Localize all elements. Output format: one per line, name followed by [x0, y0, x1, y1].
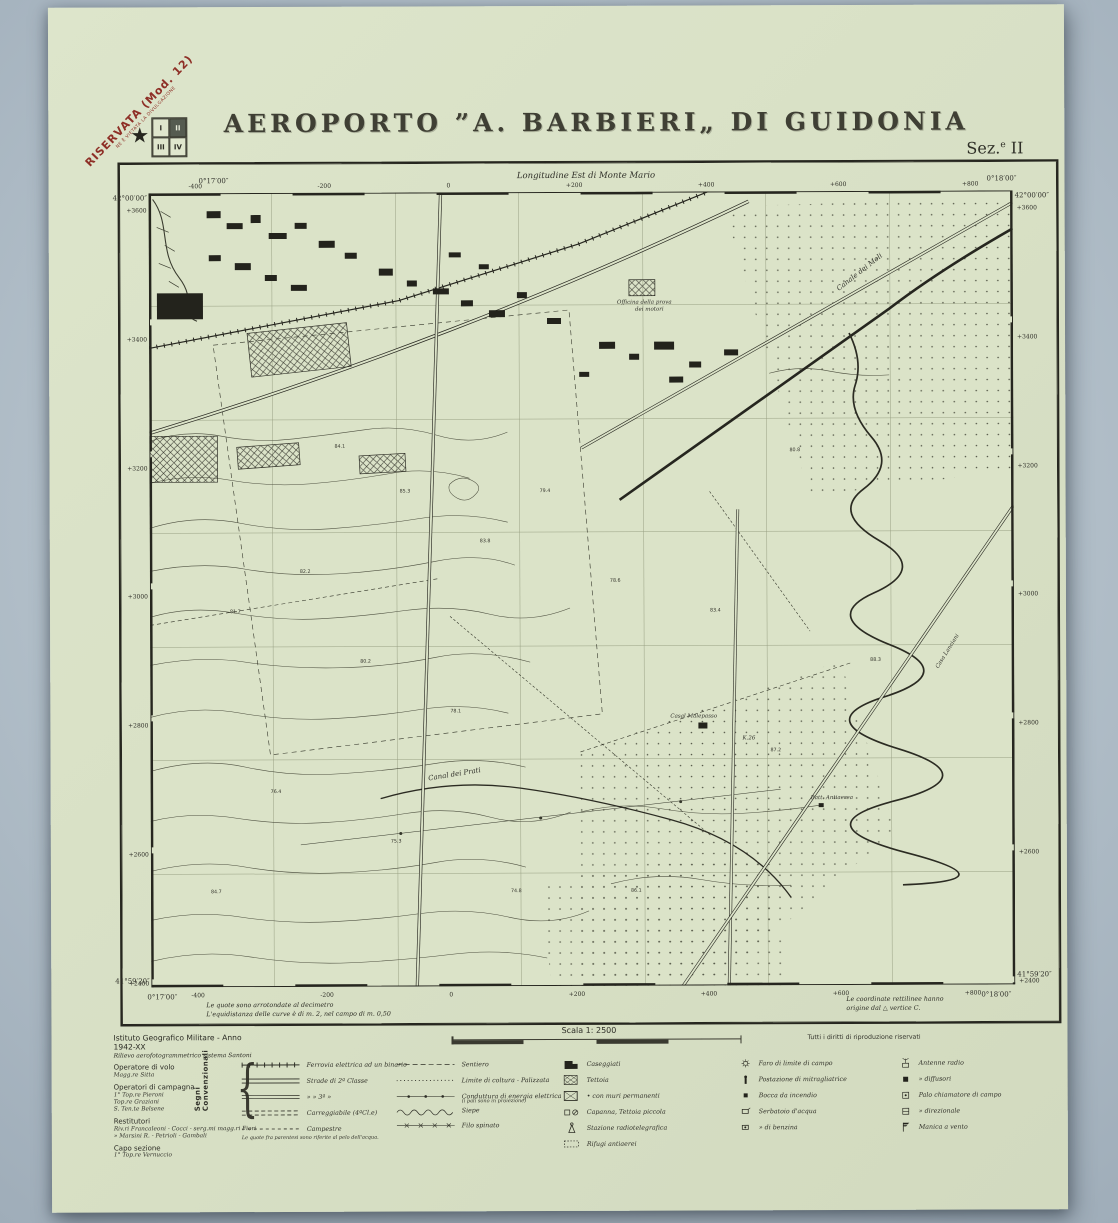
legend-row-faro: Faro di limite di campo — [740, 1055, 847, 1071]
grid-label: +3400 — [119, 336, 147, 343]
legend-row-capanna: Capanna, Tettoia piccola — [564, 1104, 667, 1120]
legend-icon-manica-vento — [900, 1122, 912, 1132]
grid-label: +3200 — [1017, 462, 1047, 469]
grid-label: -400 — [191, 992, 205, 999]
grid-label: +3600 — [1017, 204, 1047, 211]
grid-label: +200 — [566, 182, 583, 189]
grid-label: 0 — [449, 991, 453, 998]
credits-p7: 1° Top.re Vernuccio — [114, 1152, 264, 1160]
spot-height: 78.6 — [610, 578, 621, 584]
legend-row-mitragliatrice: Postazione di mitragliatrice — [740, 1071, 847, 1087]
legend-sample-conduttura — [397, 1091, 455, 1101]
legend-sample-strada2 — [242, 1076, 300, 1086]
grid-label: +2800 — [1018, 720, 1048, 727]
legend-row-palo-chiamatore: Palo chiamatore di campo — [900, 1086, 1002, 1102]
grid-label: 0 — [447, 182, 451, 189]
grid-label: +3000 — [1018, 591, 1048, 598]
grid-label: +2600 — [1019, 848, 1049, 855]
grid-label: +2400 — [1019, 977, 1049, 984]
grid-label: -200 — [318, 183, 332, 190]
corner-bottom-left-longitude: 0°17′00″ — [147, 993, 177, 1001]
spot-height: 84.7 — [211, 889, 222, 895]
grid-label: +2400 — [121, 980, 149, 987]
spot-height: 81.7 — [230, 609, 241, 615]
legend-label: Caseggiati — [587, 1060, 621, 1067]
legend-label: Siepe — [462, 1107, 480, 1114]
label-officina: Officina della prova — [617, 300, 672, 306]
legend-icon-faro — [740, 1058, 752, 1068]
copyright-note: Tutti i diritti di riproduzione riservat… — [807, 1034, 920, 1041]
grid-label: +2600 — [121, 852, 149, 859]
legend-row-serbatoio-acqua: Serbatoio d'acqua — [740, 1103, 847, 1119]
legend-row-stazione-radio: Stazione radiotelegrafica — [564, 1120, 667, 1136]
legend-label: Stazione radiotelegrafica — [587, 1124, 667, 1131]
map-area: Officina della prova dei motori Canale d… — [149, 190, 1016, 987]
label-officina-2: dei motori — [635, 307, 664, 313]
legend-row-caseggiati: Caseggiati — [564, 1056, 667, 1072]
map-notes-right: Le coordinate rettilinee hanno origine d… — [846, 995, 943, 1014]
grid-label: +400 — [701, 990, 718, 997]
legend-column-buildings: Caseggiati Tettoia • con muri permanenti… — [564, 1056, 668, 1152]
map-canvas: Officina della prova dei motori Canale d… — [149, 190, 1016, 987]
label-casal-malepasso: Casal Malepasso — [670, 713, 717, 719]
spot-height: 83.4 — [710, 607, 721, 613]
legend-sample-filo-spinato — [397, 1120, 455, 1130]
sheet-quadrant-diagram: I II III IV — [151, 117, 187, 157]
legend-label: Carreggiabile (4ªCl.e) — [307, 1109, 377, 1116]
grid-label: -400 — [189, 183, 203, 190]
map-notes-left: Le quote sono arrotondate al decimetro L… — [206, 1001, 391, 1021]
corner-bottom-right-longitude: 0°18′00″ — [981, 990, 1011, 998]
legend-sample-limite-coltura — [397, 1075, 455, 1085]
spot-height: 79.4 — [540, 488, 551, 494]
legend-column-roads: Ferrovia elettrica ad un binario Strade … — [242, 1057, 408, 1142]
scale-bar — [452, 1038, 742, 1044]
legend-sample-siepe — [397, 1106, 455, 1116]
legend-label: Rifugi antiaerei — [587, 1140, 637, 1147]
spot-height: 83.8 — [480, 538, 491, 544]
spot-height: 80.8 — [789, 447, 800, 453]
legend-label: Antenne radio — [919, 1059, 964, 1066]
quadrant-3: III — [152, 137, 169, 156]
legend-row-strada2: Strade di 2ª Classe — [242, 1073, 407, 1090]
legend-label: • con muri permanenti — [587, 1092, 660, 1099]
legend-label: Capanna, Tettoia piccola — [587, 1108, 666, 1115]
legend-row-siepe: Siepe — [397, 1104, 562, 1118]
legend-icon-capanna — [564, 1106, 580, 1118]
legend-row-carreggiabile: Carreggiabile (4ªCl.e) — [242, 1105, 407, 1122]
grid-label: +3000 — [120, 594, 148, 601]
grid-label: +3200 — [119, 465, 147, 472]
grid-label: +800 — [965, 990, 982, 997]
legend-sample-campestre — [242, 1124, 300, 1134]
corner-top-right-latitude: 42°00′00″ — [1015, 191, 1049, 199]
grid-label: +3400 — [1017, 333, 1047, 340]
legend-label: Campestre — [307, 1125, 342, 1132]
legend-label: Ferrovia elettrica ad un binario — [307, 1061, 407, 1068]
legend-label: Tettoia — [587, 1076, 609, 1083]
spot-height: 78.1 — [450, 708, 461, 714]
legend-label: » diffusori — [919, 1075, 951, 1082]
grid-labels-right: +3600+3400+3200+3000+2800+2600+2400 — [1017, 204, 1050, 984]
legend-label: Postazione di mitragliatrice — [759, 1075, 847, 1082]
section-num: II — [1011, 138, 1024, 157]
legend-label: Limite di coltura - Palizzata — [462, 1077, 550, 1084]
legend-icon-stazione-radio — [564, 1122, 580, 1134]
legend-row-serbatoio-benzina: » di benzina — [740, 1119, 847, 1135]
legend-row-limite-coltura: Limite di coltura - Palizzata — [397, 1072, 562, 1089]
map-sheet: RISERVATA (Mod. 12) NE È VIETATA LA DIVU… — [48, 4, 1068, 1213]
legend-row-tettoia: Tettoia — [564, 1072, 667, 1088]
legend-sample-ferrovia — [242, 1060, 300, 1070]
note-equidistanza: L'equidistanza delle curve è di m. 2, ne… — [206, 1010, 391, 1020]
legend-column-lines: Sentiero Limite di coltura - Palizzata C… — [397, 1056, 562, 1134]
legend-label: Bocca da incendio — [759, 1092, 817, 1099]
corner-top-left-latitude: 42°00′00″ — [113, 194, 147, 202]
section-label: Sez.e II — [966, 138, 1023, 157]
grid-label: +400 — [698, 181, 715, 188]
legend-icon-serbatoio-benzina — [740, 1122, 752, 1132]
section-pre: Sez. — [966, 138, 1000, 157]
legend-icon-antenne — [900, 1058, 912, 1068]
spot-height: 87.2 — [770, 747, 781, 753]
label-km-marker: K.26 — [741, 735, 755, 741]
legend-icon-palo-direzionale — [900, 1106, 912, 1116]
legend-icon-tettoia — [564, 1074, 580, 1086]
legend-row-rifugi: Rifugi antiaerei — [564, 1136, 667, 1152]
legend-sample-carreggiabile — [242, 1108, 300, 1118]
officina-building — [629, 280, 655, 296]
legend-sample-sentiero — [397, 1059, 455, 1069]
corner-top-right-longitude: 0°18′00″ — [986, 174, 1016, 182]
battery-building — [819, 803, 824, 807]
legend-note-parentesi: Le quote fra parentesi sono riferite al … — [242, 1135, 407, 1142]
grid-label: +3600 — [119, 207, 147, 214]
spot-height: 85.3 — [400, 489, 411, 495]
legend-icon-diffusori — [900, 1074, 912, 1084]
grid-label: -200 — [320, 992, 334, 999]
spot-height: 84.1 — [334, 444, 345, 450]
grid-label: +800 — [962, 181, 979, 188]
legend-label: » di benzina — [759, 1124, 798, 1131]
quadrant-1: I — [152, 118, 169, 137]
legend-label: Strade di 2ª Classe — [307, 1077, 368, 1084]
legend-label: Filo spinato — [462, 1122, 500, 1129]
section-sup: e — [1000, 140, 1005, 150]
legend-label: Serbatoio d'acqua — [759, 1108, 817, 1115]
legend-row-manica-vento: Manica a vento — [900, 1118, 1002, 1134]
legend-icon-caseggiati — [564, 1058, 580, 1070]
quadrant-4: IV — [169, 137, 186, 156]
legend-row-diffusori: » diffusori — [900, 1070, 1002, 1086]
note-coordinate-1: Le coordinate rettilinee hanno — [846, 995, 943, 1005]
grid-labels-left: +3600+3400+3200+3000+2800+2600+2400 — [119, 207, 150, 987]
spot-height: 76.4 — [271, 789, 282, 795]
grid-label: +200 — [569, 991, 586, 998]
spot-height: 75.3 — [391, 839, 402, 845]
note-coordinate-2: origine dal △ vertice C. — [846, 1004, 943, 1014]
legend-icon-palo-chiamatore — [900, 1090, 912, 1100]
legend-label: Manica a vento — [919, 1123, 968, 1130]
legend-label: » direzionale — [919, 1107, 960, 1114]
casal-malepasso-building — [698, 722, 707, 728]
legend-label: » » 3ª » — [307, 1093, 332, 1100]
spot-height: 88.3 — [870, 657, 881, 663]
legend-icon-serbatoio-acqua — [740, 1106, 752, 1116]
label-batteria: Batt. Antiaerea — [810, 795, 853, 801]
legend-row-antenne: Antenne radio — [900, 1054, 1002, 1070]
quadrant-2-highlighted: II — [169, 118, 186, 137]
grid-label: +600 — [830, 181, 847, 188]
credits-institute: Istituto Geografico Militare - Anno 1942… — [113, 1033, 263, 1052]
legend-icon-mitragliatrice — [740, 1074, 752, 1084]
legend-row-tettoia-muri: • con muri permanenti — [564, 1088, 667, 1104]
legend-row-strada3: » » 3ª » — [242, 1089, 407, 1106]
spot-height: 86.1 — [631, 888, 642, 894]
legend-row-ferrovia: Ferrovia elettrica ad un binario — [242, 1057, 407, 1074]
grid-label: +2800 — [120, 723, 148, 730]
legend-label: Faro di limite di campo — [759, 1060, 833, 1067]
legend-heading: Segni Convenzionali — [194, 1041, 210, 1111]
legend-sample-strada3 — [242, 1092, 300, 1102]
spot-height: 80.2 — [360, 659, 371, 665]
spot-height: 74.8 — [511, 888, 522, 894]
legend-icon-bocca-incendio — [740, 1090, 752, 1100]
legend-row-bocca-incendio: Bocca da incendio — [740, 1087, 847, 1103]
spot-height: 82.2 — [300, 569, 311, 575]
legend-icon-rifugi — [564, 1138, 580, 1150]
legend-row-palo-direzionale: » direzionale — [900, 1102, 1002, 1118]
star-icon: ★ — [130, 123, 149, 147]
legend-row-sentiero: Sentiero — [397, 1056, 562, 1073]
map-title: AEROPORTO ”A. BARBIERI„ DI GUIDONIA — [198, 106, 994, 138]
legend-label: Palo chiamatore di campo — [919, 1091, 1002, 1098]
legend-row-filo-spinato: Filo spinato — [397, 1117, 562, 1134]
legend-column-equipment: Faro di limite di campo Postazione di mi… — [740, 1055, 847, 1135]
legend-label: Sentiero — [462, 1061, 489, 1068]
legend-icon-tettoia-muri — [564, 1090, 580, 1102]
legend-column-radio: Antenne radio » diffusori Palo chiamator… — [900, 1054, 1002, 1134]
